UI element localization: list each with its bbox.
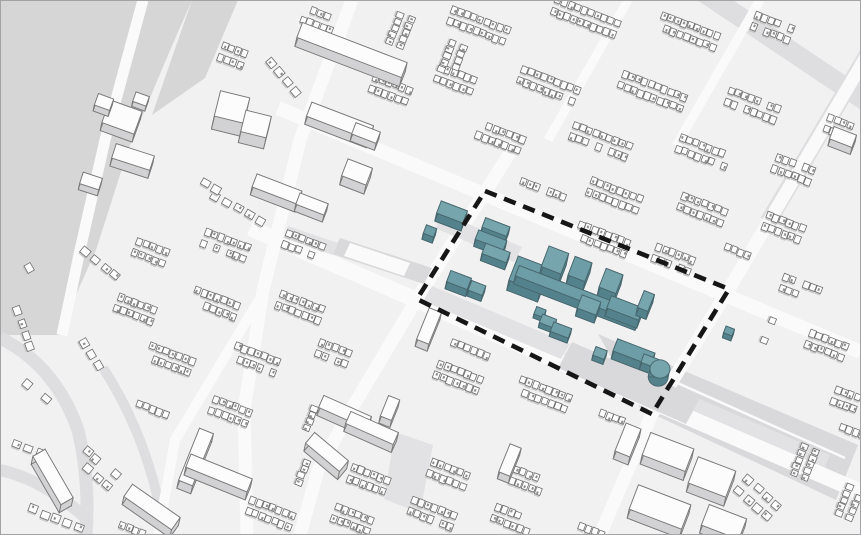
highlighted-building-round xyxy=(648,360,670,386)
city-map xyxy=(0,0,861,535)
map-viewport xyxy=(0,0,861,535)
